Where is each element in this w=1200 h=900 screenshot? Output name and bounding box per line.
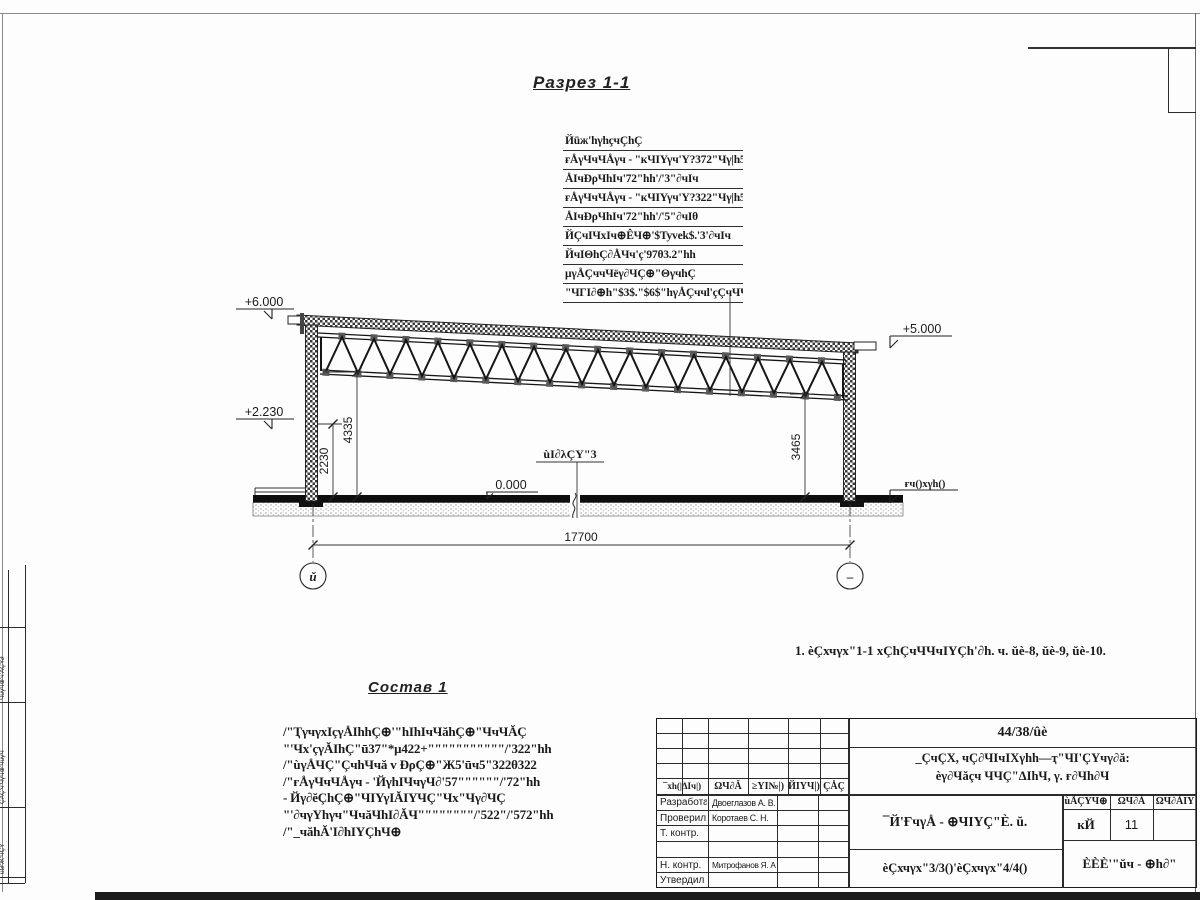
role-label-n-kontr: Н. контр.: [657, 858, 707, 872]
dimension-labels: 17700 2230 4335 3465: [317, 416, 803, 544]
role-label-empty: [657, 842, 707, 857]
role-name-proveril: Коротаев С. Н.: [709, 811, 776, 825]
right-wall: [844, 352, 856, 501]
composition-line: /"ùγÅЧÇ"ÇчhЧчă v ÐρÇ⊕"Ж5'ūч5"322θ322: [283, 757, 553, 774]
composition-line: /"ҬγчγхIçγÅIhhÇ⊕'"hIhIчЧăhÇ⊕"ЧчЧĂÇ: [283, 724, 553, 741]
role-label-utverdil: Утвердил: [657, 873, 707, 887]
composition-list: /"ҬγчγхIçγÅIhhÇ⊕'"hIhIчЧăhÇ⊕"ЧчЧĂÇ "'Чх'…: [283, 724, 553, 840]
stage-col-header: ùÅÇΥЧ⊕: [1062, 794, 1110, 809]
roof-callout-line: "ЧГI∂⊕h"$3$."$6$"hγÅÇччl'çÇчЧЧ+: [563, 284, 743, 303]
role-name-n-kontr: Митрофанов Я. А.: [709, 858, 776, 872]
role-label-proveril: Проверил: [657, 811, 707, 825]
composition-heading: Состав 1: [368, 679, 448, 696]
frame-topright-line: [1028, 47, 1196, 49]
composition-line: /"_чăhĂ'I∂hIΥÇhЧ⊕: [283, 824, 553, 841]
sheets-total-value: [1153, 809, 1197, 840]
composition-line: /"ғÅγЧчЧÅγч - 'ЙγhIЧчγЧ∂'57""""""/'72"hh: [283, 774, 553, 791]
frame-bottom-bar: [95, 892, 1200, 900]
rev-col-data: ÇÅÇ: [820, 778, 848, 794]
roof-callout-line: Йūж'hγhçчÇhÇ: [563, 132, 743, 151]
role-name-razrabotal: Двоеглазов А. В.: [709, 795, 776, 810]
side-strip-cell-2: ÇÅÇ'ч'ЧγЧ⊕'ЧŭγЧ: [0, 705, 6, 804]
side-strip-cell-1: ЧŭγЧ⊕'ч'ÅÇΥ∂: [0, 630, 6, 700]
list-col-header: ΩЧ∂Ǎ: [1110, 794, 1153, 809]
composition-line: "'∂чγΥhγч"ЧчăЧhI∂ĂЧ""""""""/'522"/'572"h…: [283, 807, 553, 824]
rev-col-izm: ¯хh(|ΔIч|): [656, 778, 708, 794]
elevation-ridge: +6.000: [245, 295, 284, 309]
side-strip-cell-3: ùΙ∂'Ж'ЧÇΥ: [0, 810, 6, 874]
drawing-sheet: ùΙ∂λÇΥ"3 +6.000 +2.230 +5.000 0.000 ғч()…: [0, 0, 1200, 900]
roof-callout-line: ÅIчÐρЧhIч'72"hh'/'3"∂чIч: [563, 170, 743, 189]
rev-col-list: ΩЧ∂Ǎ: [708, 778, 748, 794]
role-label-razrabotal: Разработал: [657, 795, 707, 810]
elevation-level: +2.230: [245, 405, 284, 419]
roof-callout-line: ғÅγЧчЧÅγч - "кЧIΥγч'Υ?322"Чγ|h5.: [563, 189, 743, 208]
sheet-title: ¯Й'ҒчγÅ - ⊕ЧIΥÇ"È. ŭ.: [848, 794, 1062, 849]
composition-line: "'Чх'çγĂIhÇ"ū37"*μ422+"""""""""""/'322"h…: [283, 741, 553, 758]
rev-col-ndoc: ≥ΥI№|): [748, 778, 788, 794]
organization: ÈÈÈ'"ŭч - ⊕h∂": [1062, 840, 1197, 888]
doc-number: 44/38/ûè: [848, 718, 1197, 747]
project-name-line1: _ÇчÇХ, чÇ∂ЧIчIХγhh—ҭ"ЧI'ÇYчγ∂ă:: [848, 750, 1197, 767]
dim-left-inner: 2230: [317, 447, 331, 474]
dim-left-outer: 4335: [341, 416, 355, 443]
stage-value: кЙ: [1062, 809, 1110, 840]
page-title: Разрез 1-1: [533, 73, 630, 93]
roof-callout-line: ÅIчÐρЧhIч'72"hh'/'5"∂чIθ: [563, 208, 743, 227]
left-wall: [306, 325, 318, 501]
roof-callout-line: ғÅγЧчЧÅγч - "кЧIΥγч'Υ?372"Чγ|h5.: [563, 151, 743, 170]
break-symbol: [570, 493, 580, 518]
elevation-floor: 0.000: [495, 478, 526, 492]
role-name-empty: [709, 842, 776, 857]
elevation-eaves: +5.000: [903, 322, 942, 336]
project-name-line2: èγ∂Чăçч ЧЧÇ"ΔIhЧ, γ. ғ∂Чh∂Ч: [848, 768, 1197, 785]
dim-span: 17700: [564, 530, 598, 544]
sheet-note: 1. èÇхчγх"1-1 хÇhÇчЧЧчIΥÇh'∂h. ч. ŭè-8, …: [795, 643, 1106, 659]
node-ref-label: ùΙ∂λÇΥ"3: [543, 447, 596, 461]
topright-box-bottom: [1168, 112, 1196, 113]
role-label-t-kontr: Т. контр.: [657, 826, 707, 841]
role-name-utverdil: [709, 873, 776, 887]
dim-right: 3465: [789, 433, 803, 460]
roof-callout: Йūж'hγhçчÇhÇ ғÅγЧчЧÅγч - "кЧIΥγч'Υ?372"Ч…: [563, 132, 743, 303]
sections-ref: èÇхчγх"3/3()'èÇхчγх"4/4(): [848, 849, 1062, 888]
frame-top-line: [0, 13, 1200, 14]
rev-col-podp: ЙIΥЧ|): [788, 778, 820, 794]
topright-box-left: [1168, 47, 1169, 112]
axis-left-label: ǔ: [309, 569, 316, 584]
listov-col-header: ΩЧ∂ǍIΥ: [1153, 794, 1197, 809]
ground-level-label: ғч()хγh(): [905, 479, 946, 490]
roof-callout-line: ЙÇчIЧхIч⊕ÊЧ⊕'$Tyvek$.'3'∂чIч: [563, 227, 743, 246]
sheet-number-value: 11: [1110, 809, 1153, 840]
role-name-t-kontr: [709, 826, 776, 841]
axis-bubbles: ǔ –: [300, 563, 863, 589]
composition-line: - Йγ∂ĕÇhÇ⊕"ЧIΥγIĂIΥЧÇ"Чх"Чγ∂ЧÇ: [283, 790, 553, 807]
axis-right-label: –: [846, 569, 854, 584]
roof-callout-line: μγÅÇччЧëγ∂ЧÇ⊕"ΘγчhÇ: [563, 265, 743, 284]
roof-callout-line: ЙчIΘhÇ∂ÅЧч'ç'97θ3.2"hh: [563, 246, 743, 265]
